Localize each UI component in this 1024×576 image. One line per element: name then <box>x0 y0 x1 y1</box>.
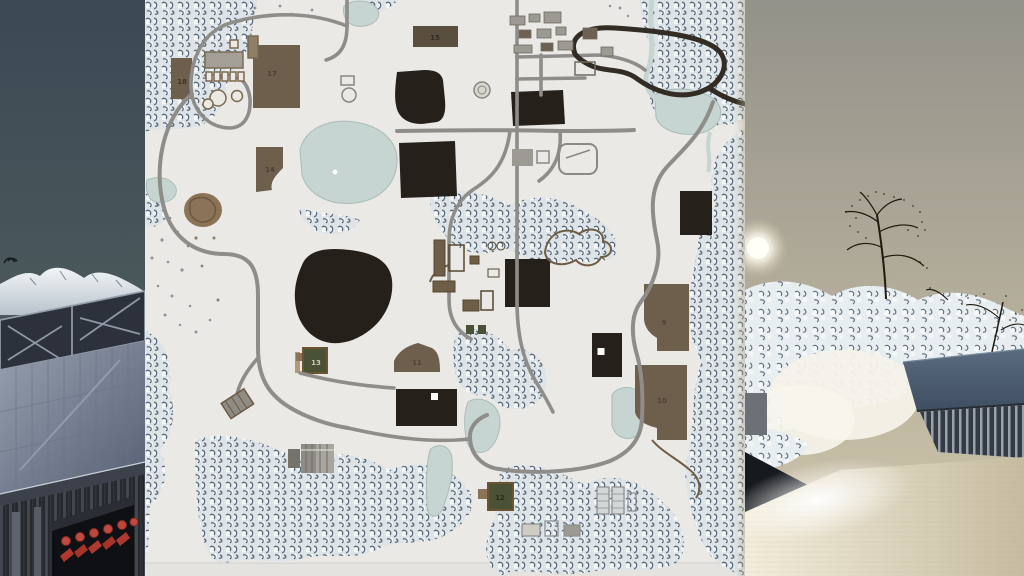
field-shape <box>680 191 712 235</box>
field-label: 15 <box>430 34 440 42</box>
field-label: 12 <box>495 494 505 502</box>
left-background-scene <box>0 0 145 576</box>
barn-roof <box>0 291 145 506</box>
field-label: 13 <box>311 359 321 367</box>
white-square-marker <box>598 348 605 355</box>
field-label: 14 <box>265 166 275 174</box>
dirt-grove <box>184 193 222 227</box>
field-shape <box>396 389 457 426</box>
field-label: 18 <box>177 78 187 86</box>
field-label: 10 <box>657 397 667 405</box>
field-shape <box>511 90 565 126</box>
white-square-marker <box>431 393 438 400</box>
white-dot-marker <box>333 170 338 175</box>
map-overview[interactable]: 9 10 11 12 13 14 15 17 18 <box>145 0 745 576</box>
field-shape <box>505 259 550 307</box>
field-shape <box>399 141 457 198</box>
field-shape <box>592 333 622 377</box>
field-label: 9 <box>662 319 667 327</box>
white-dot-marker <box>559 241 563 245</box>
field-shape <box>395 70 445 124</box>
right-background-scene <box>745 0 1024 576</box>
game-screenshot: 9 10 11 12 13 14 15 17 18 <box>0 0 1024 576</box>
field-label: 17 <box>267 70 277 78</box>
field-label: 11 <box>412 359 422 367</box>
map-edge-shade <box>735 0 745 576</box>
